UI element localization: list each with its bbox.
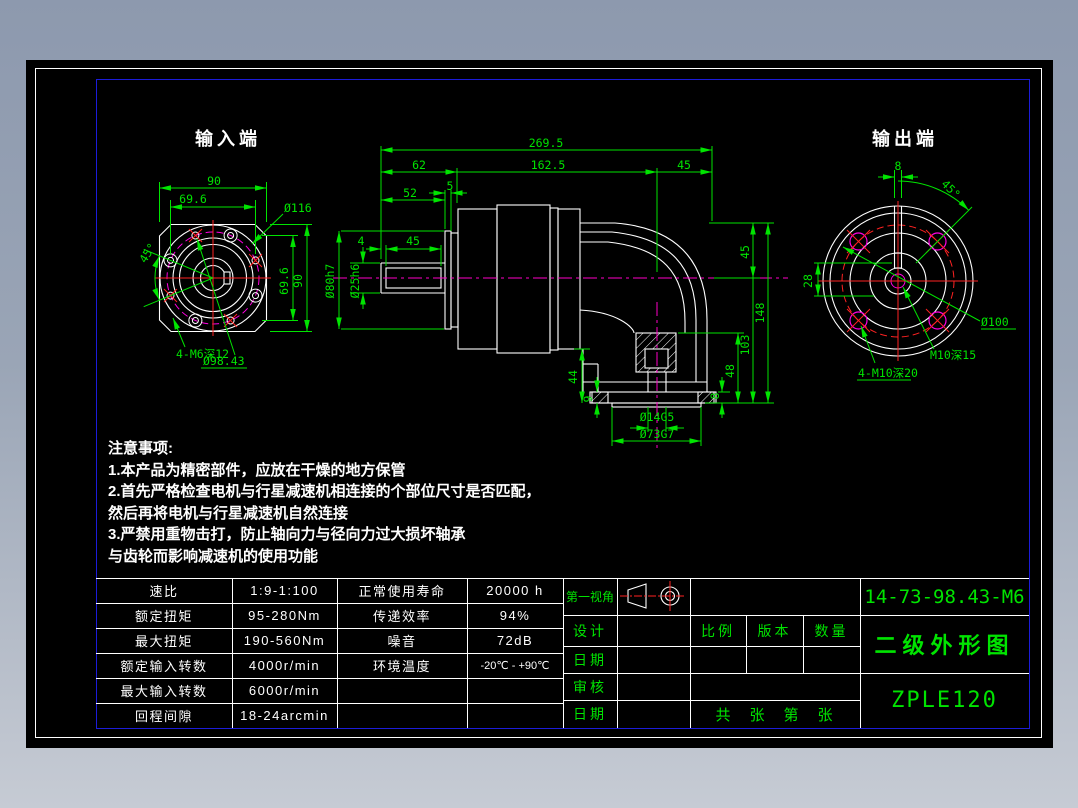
notes-line: 与齿轮而影响减速机的使用功能 bbox=[108, 546, 541, 568]
output-end-view: 8 45° 28 Ø100 M10深15 4-M10深20 bbox=[801, 159, 1016, 380]
spec-value: 95-280Nm bbox=[232, 603, 337, 628]
dim-45-keyway: 45 bbox=[406, 234, 420, 248]
dim-width: 90 bbox=[207, 174, 221, 188]
dim-spigot: Ø73G7 bbox=[640, 427, 675, 441]
design-label: 设计 bbox=[563, 615, 617, 646]
dim-162-5: 162.5 bbox=[531, 158, 566, 172]
model-number: ZPLE120 bbox=[860, 673, 1029, 728]
notes-line: 3.严禁用重物击打，防止轴向力与径向力过大损坏轴承 bbox=[108, 524, 541, 546]
date-label: 日期 bbox=[563, 646, 617, 673]
spec-value: -20℃ - +90℃ bbox=[467, 653, 563, 678]
dim-angle: 45° bbox=[939, 177, 964, 202]
dim-shaft-dia: Ø25h6 bbox=[348, 264, 362, 299]
dim-48: 48 bbox=[723, 364, 737, 378]
spec-label: 额定扭矩 bbox=[96, 603, 232, 628]
dim-inner-height: 69.6 bbox=[277, 267, 291, 295]
input-end-title: 输入端 bbox=[195, 125, 261, 151]
cad-viewport: 90 69.6 Ø116 45° 69.6 90 4-M6深12 Ø98.43 bbox=[0, 0, 1078, 808]
spec-value: 6000r/min bbox=[232, 678, 337, 703]
dim-inner-width: 69.6 bbox=[179, 192, 207, 206]
side-view: 269.5 62 162.5 45 52 5 4 45 Ø80h7 Ø25h6 … bbox=[323, 136, 788, 450]
dim-bolt-circle: Ø100 bbox=[981, 315, 1009, 329]
spec-value: 1:9-1:100 bbox=[232, 578, 337, 603]
spec-value: 4000r/min bbox=[232, 653, 337, 678]
dim-44: 44 bbox=[566, 370, 580, 384]
dim-key-width: 8 bbox=[895, 159, 902, 173]
dim-148: 148 bbox=[753, 303, 767, 324]
spec-value: 18-24arcmin bbox=[232, 703, 337, 728]
spec-label: 回程间隙 bbox=[96, 703, 232, 728]
spec-label: 传递效率 bbox=[337, 603, 467, 628]
qty-label: 数量 bbox=[803, 615, 860, 646]
spec-value: 72dB bbox=[467, 628, 563, 653]
output-dim-lines bbox=[814, 170, 1016, 380]
dim-52: 52 bbox=[403, 186, 417, 200]
spec-label: 噪音 bbox=[337, 628, 467, 653]
spec-value: 20000 h bbox=[467, 578, 563, 603]
dim-45-top: 45 bbox=[677, 158, 691, 172]
dim-62: 62 bbox=[412, 158, 426, 172]
dim-corner-dia: Ø116 bbox=[284, 201, 312, 215]
dim-center-tap: M10深15 bbox=[930, 348, 976, 362]
spec-value: 94% bbox=[467, 603, 563, 628]
dim-8-base: 8 bbox=[708, 392, 722, 399]
notes-block: 注意事项: 1.本产品为精密部件，应放在干燥的地方保管 2.首先严格检查电机与行… bbox=[108, 438, 541, 567]
notes-line: 1.本产品为精密部件，应放在干燥的地方保管 bbox=[108, 460, 541, 482]
input-end-view: 90 69.6 Ø116 45° 69.6 90 4-M6深12 Ø98.43 bbox=[136, 174, 312, 368]
drawing-name: 二级外形图 bbox=[860, 615, 1029, 673]
spec-label: 速比 bbox=[96, 578, 232, 603]
dim-height: 90 bbox=[291, 274, 305, 288]
spec-label: 额定输入转数 bbox=[96, 653, 232, 678]
dim-4: 4 bbox=[358, 234, 365, 248]
dim-9: 9 bbox=[581, 395, 595, 402]
dim-bolt-circle: Ø98.43 bbox=[203, 354, 245, 368]
spec-label: 最大输入转数 bbox=[96, 678, 232, 703]
scale-label: 比例 bbox=[690, 615, 746, 646]
dim-angle: 45° bbox=[136, 240, 159, 265]
dim-45-right: 45 bbox=[738, 245, 752, 259]
notes-heading: 注意事项: bbox=[108, 438, 541, 460]
part-code: 14-73-98.43-M6 bbox=[860, 578, 1029, 615]
dim-flange-tap: 4-M10深20 bbox=[858, 366, 918, 380]
dim-total-length: 269.5 bbox=[529, 136, 564, 150]
notes-line: 2.首先严格检查电机与行星减速机相连接的个部位尺寸是否匹配， bbox=[108, 481, 541, 503]
first-angle-symbol bbox=[620, 581, 686, 611]
sheets-label: 共 张 第 张 bbox=[690, 700, 860, 728]
dim-103: 103 bbox=[738, 335, 752, 356]
version-label: 版本 bbox=[746, 615, 803, 646]
spec-label: 最大扭矩 bbox=[96, 628, 232, 653]
notes-line: 然后再将电机与行星减速机自然连接 bbox=[108, 503, 541, 525]
spec-value: 190-560Nm bbox=[232, 628, 337, 653]
audit-label: 审核 bbox=[563, 673, 617, 700]
body-outline bbox=[381, 205, 716, 407]
dim-flange-dia: Ø80h7 bbox=[323, 264, 337, 299]
dim-key-depth: 28 bbox=[801, 274, 815, 288]
spec-label: 正常使用寿命 bbox=[337, 578, 467, 603]
dim-5: 5 bbox=[447, 179, 454, 193]
spec-label: 环境温度 bbox=[337, 653, 467, 678]
output-end-title: 输出端 bbox=[872, 125, 938, 151]
first-angle-label: 第一视角 bbox=[563, 578, 617, 615]
dim-bore: Ø14G5 bbox=[640, 410, 675, 424]
date-label: 日期 bbox=[563, 700, 617, 728]
